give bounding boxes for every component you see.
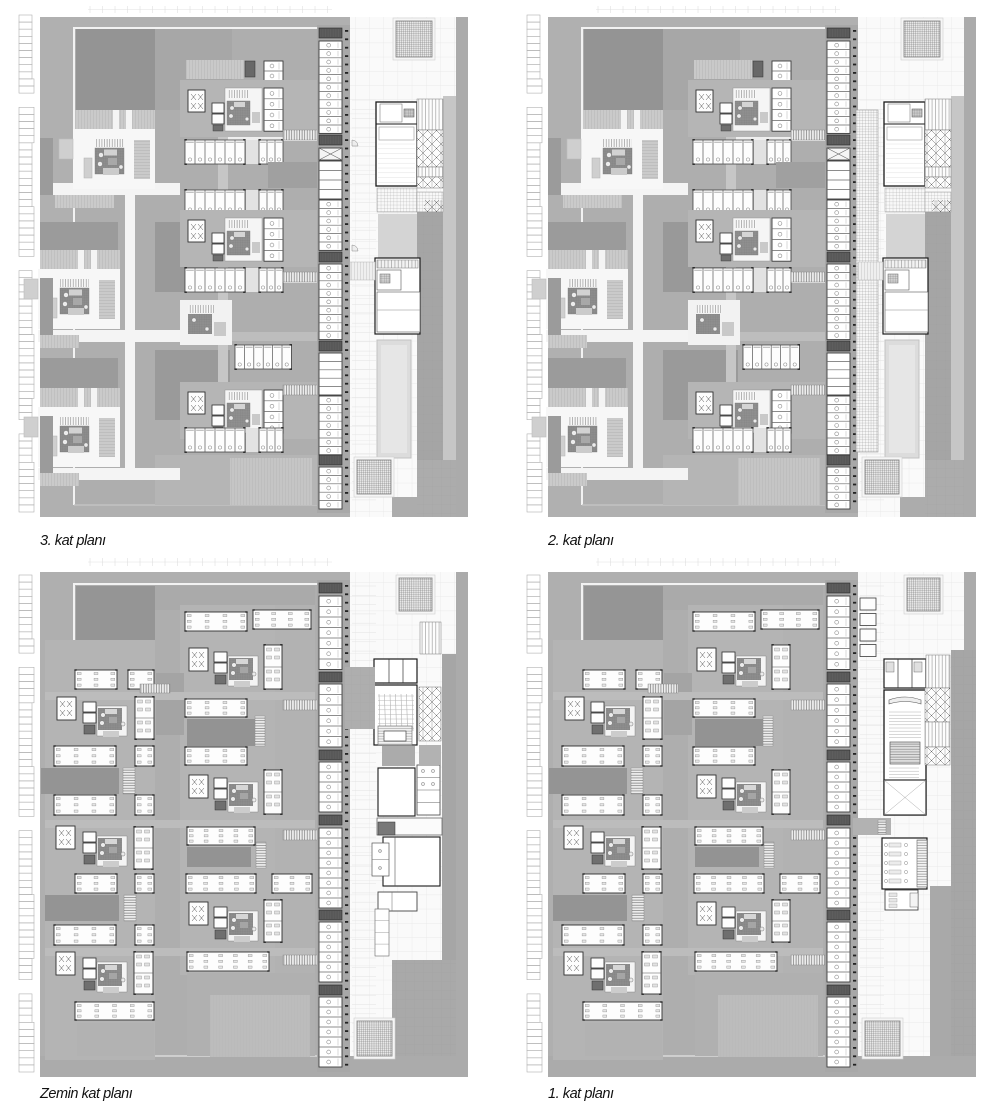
svg-text:Zemin kat planı: Zemin kat planı xyxy=(39,1086,133,1102)
svg-text:1. kat planı: 1. kat planı xyxy=(548,1086,614,1102)
svg-text:2. kat planı: 2. kat planı xyxy=(547,533,614,549)
svg-text:3. kat planı: 3. kat planı xyxy=(40,533,106,549)
